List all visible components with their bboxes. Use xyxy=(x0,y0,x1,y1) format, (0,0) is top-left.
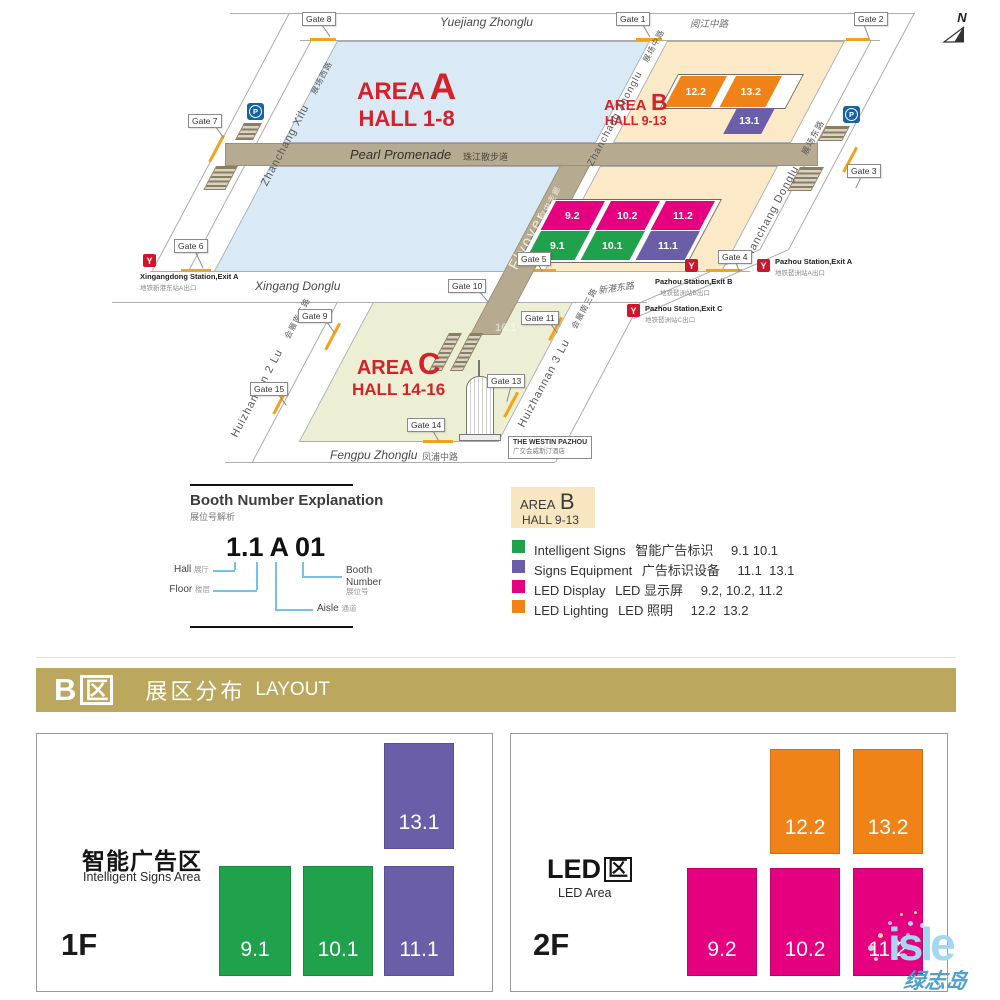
legend-item-en: Signs Equipment xyxy=(534,563,632,578)
hotel-name-zh: 广交会威斯汀酒店 xyxy=(513,448,587,456)
legend-item-en: Intelligent Signs xyxy=(534,543,626,558)
gate-pointer xyxy=(195,252,204,269)
exhibition-map-page: 12.2 13.2 13.1 9.2 10.2 11.2 9.1 10.1 11… xyxy=(0,0,1000,1000)
road-fengpu-en: Fengpu Zhonglu xyxy=(330,448,417,462)
station-pazhou-c-en: Pazhou Station,Exit C xyxy=(645,304,723,313)
panel-1f-floor-label: 1F xyxy=(61,927,97,963)
hall-number: 13.1 xyxy=(739,115,759,127)
gate-label-15: Gate 15 xyxy=(250,382,288,396)
hall-number: 9.1 xyxy=(240,938,269,962)
road-pearl-en: Pearl Promenade xyxy=(350,147,451,162)
legend-item-halls: 9.1 10.1 xyxy=(731,543,778,558)
station-pazhou-b-zh: 地铁琶洲站B出口 xyxy=(660,287,710,297)
panel-hall-10-1: 10.1 xyxy=(303,866,373,976)
panel-hall-13-2: 13.2 xyxy=(853,749,923,854)
legend-item-en: LED Lighting xyxy=(534,603,608,618)
hall-number: 11.1 xyxy=(399,938,438,962)
gate-label-14: Gate 14 xyxy=(407,418,445,432)
gate-label-1: Gate 1 xyxy=(616,12,650,26)
road-xingang-en: Xingang Donglu xyxy=(255,279,340,293)
westin-tower-base xyxy=(459,434,501,441)
legend-item-halls: 12.2 13.2 xyxy=(691,603,749,618)
gate-label-11: Gate 11 xyxy=(521,311,559,325)
gate-label-4: Gate 4 xyxy=(718,250,752,264)
legend-area-word: AREA xyxy=(520,497,555,512)
gate-label-9: Gate 9 xyxy=(298,309,332,323)
watermark-dot xyxy=(868,945,874,951)
section-area-letter: B xyxy=(54,672,76,708)
gate-label-6: Gate 6 xyxy=(174,239,208,253)
metro-icon: Y xyxy=(757,259,770,272)
area-hall: HALL 14-16 xyxy=(352,381,445,399)
panel-2f-subtitle: LED Area xyxy=(558,886,612,900)
watermark-dot xyxy=(900,913,903,916)
area-b-legend: AREA B HALL 9-13 Intelligent Signs 智能广告标… xyxy=(0,480,1000,640)
area-a-title: AREA A HALL 1-8 xyxy=(357,68,456,130)
westin-hotel-label: THE WESTIN PAZHOU 广交会威斯汀酒店 xyxy=(508,436,592,459)
area-letter: C xyxy=(418,346,440,381)
station-pazhou-a-zh: 地铁琶洲站A出口 xyxy=(775,267,825,277)
faint-hall-label: 16.1 xyxy=(495,322,516,334)
watermark-dot xyxy=(874,957,878,961)
gate-label-8: Gate 8 xyxy=(302,12,336,26)
road-yuejiang-zh: 阅江中路 xyxy=(690,16,728,30)
legend-swatch-led-lighting xyxy=(512,600,525,613)
floor-panel-1f: 13.1 9.1 10.1 11.1 智能广告区 Intelligent Sig… xyxy=(36,733,493,992)
hall-number: 9.1 xyxy=(550,240,565,252)
hotel-name-en: THE WESTIN PAZHOU xyxy=(513,439,587,448)
hall-number: 9.2 xyxy=(565,210,580,222)
metro-icon: Y xyxy=(143,254,156,267)
legend-item-halls: 11.1 13.1 xyxy=(738,563,795,578)
callout-line xyxy=(256,562,258,590)
legend-item-zh: 智能广告标识 xyxy=(635,543,713,558)
watermark-dot xyxy=(914,911,917,914)
legend-swatch-intelligent-signs xyxy=(512,540,525,553)
panel-hall-13-1: 13.1 xyxy=(384,743,454,849)
gate-pointer xyxy=(327,322,335,332)
section-title-zh: 展区分布 xyxy=(145,674,245,706)
panel-hall-12-2: 12.2 xyxy=(770,749,840,854)
hall-number: 13.1 xyxy=(399,811,440,835)
panel-hall-10-2: 10.2 xyxy=(770,868,840,976)
callout-line xyxy=(275,562,277,609)
area-word: AREA xyxy=(357,78,425,105)
compass-n-label: N xyxy=(956,10,968,25)
legend-item-halls: 9.2, 10.2, 11.2 xyxy=(701,583,783,598)
legend-item-led-display: LED Display LED 显示屏 9.2, 10.2, 11.2 xyxy=(534,580,783,599)
gate-label-5: Gate 5 xyxy=(517,252,551,266)
gate-pointer xyxy=(864,26,869,39)
pearl-promenade-band xyxy=(225,143,818,166)
gate-tick xyxy=(310,38,336,41)
gate-pointer xyxy=(322,25,330,36)
gate-tick xyxy=(324,323,341,351)
hall-number: 10.1 xyxy=(603,240,623,252)
legend-item-zh: LED 照明 xyxy=(618,603,673,618)
panel-2f-title-prefix: LED xyxy=(547,854,601,884)
parking-icon: P xyxy=(843,106,860,123)
road-line xyxy=(225,462,555,463)
gate-label-10: Gate 10 xyxy=(448,279,486,293)
legend-item-en: LED Display xyxy=(534,583,606,598)
panel-hall-9-1: 9.1 xyxy=(219,866,291,976)
legend-swatch-signs-equipment xyxy=(512,560,525,573)
gate-pointer xyxy=(855,178,861,188)
section-divider-line xyxy=(36,657,956,658)
panel-1f-subtitle: Intelligent Signs Area xyxy=(83,870,200,884)
area-hall: HALL 1-8 xyxy=(357,107,456,130)
callout-line xyxy=(213,570,235,572)
gate-label-7: Gate 7 xyxy=(188,114,222,128)
road-name-zh: 会展南三路 xyxy=(570,286,599,330)
gate-tick xyxy=(846,38,870,41)
panel-hall-9-2: 9.2 xyxy=(687,868,757,976)
metro-icon: Y xyxy=(627,304,640,317)
legend-item-zh: 广告标识设备 xyxy=(642,563,720,578)
panel-2f-floor-label: 2F xyxy=(533,927,569,963)
hall-number: 12.2 xyxy=(686,86,706,98)
callout-line xyxy=(302,576,342,578)
road-pearl-zh: 珠江散步道 xyxy=(463,150,508,163)
legend-item-led-lighting: LED Lighting LED 照明 12.2 13.2 xyxy=(534,600,748,619)
legend-area-letter: B xyxy=(560,489,575,514)
station-pazhou-b-en: Pazhou Station,Exit B xyxy=(655,277,733,286)
venue-map: 12.2 13.2 13.1 9.2 10.2 11.2 9.1 10.1 11… xyxy=(0,0,1000,480)
legend-area-box: AREA B HALL 9-13 xyxy=(511,487,595,528)
road-yuejiang-en: Yuejiang Zhonglu xyxy=(440,15,533,29)
parking-letter: P xyxy=(845,108,858,121)
area-letter: A xyxy=(429,66,456,107)
area-word: AREA xyxy=(357,357,414,379)
section-header-bar: B 区 展区分布 LAYOUT xyxy=(36,668,956,712)
hall-number: 10.2 xyxy=(618,210,638,222)
panel-2f-title-char: 区 xyxy=(604,857,632,882)
legend-item-intelligent-signs: Intelligent Signs 智能广告标识 9.1 10.1 xyxy=(534,540,778,559)
station-pazhou-a-en: Pazhou Station,Exit A xyxy=(775,257,852,266)
panel-2f-title: LED区 xyxy=(547,854,632,885)
hall-number: 12.2 xyxy=(785,816,826,840)
gate-tick xyxy=(208,135,225,163)
gate-label-13: Gate 13 xyxy=(487,374,525,388)
legend-item-zh: LED 显示屏 xyxy=(615,583,683,598)
area-letter: B xyxy=(651,89,668,115)
hall-number: 11.2 xyxy=(673,210,693,222)
callout-line xyxy=(302,562,304,576)
road-fengpu-zh: 凤浦中路 xyxy=(422,450,458,463)
parking-icon: P xyxy=(247,103,264,120)
station-xingangdong-zh: 地铁新港东站A出口 xyxy=(140,282,196,292)
watermark-text-zh: 绿志岛 xyxy=(902,965,969,995)
section-area-char: 区 xyxy=(80,675,113,705)
legend-area-hall: HALL 9-13 xyxy=(522,513,595,527)
compass: N xyxy=(942,10,968,50)
compass-arrow-icon xyxy=(942,25,968,45)
hall-number: 13.2 xyxy=(741,86,761,98)
legend-item-signs-equipment: Signs Equipment 广告标识设备 11.1 13.1 xyxy=(534,560,794,579)
station-pazhou-c-zh: 地铁琶洲站C出口 xyxy=(645,314,695,324)
section-title-en: LAYOUT xyxy=(255,679,330,701)
watermark-logo: isle 绿志岛 xyxy=(862,905,997,1000)
hall-number: 11.1 xyxy=(658,240,678,252)
callout-line xyxy=(213,590,257,592)
area-c-title: AREA C HALL 14-16 xyxy=(352,348,445,398)
legend-swatch-led-display xyxy=(512,580,525,593)
watermark-text: isle xyxy=(888,917,953,971)
hall-number: 10.2 xyxy=(785,938,826,962)
hall-number: 9.2 xyxy=(707,938,736,962)
callout-line xyxy=(275,609,313,611)
watermark-dot xyxy=(878,933,883,938)
callout-line xyxy=(234,562,236,570)
gate-label-2: Gate 2 xyxy=(854,12,888,26)
panel-hall-11-1: 11.1 xyxy=(384,866,454,976)
metro-icon: Y xyxy=(685,259,698,272)
hall-number: 13.2 xyxy=(868,816,909,840)
parking-letter: P xyxy=(249,105,262,118)
hall-number: 10.1 xyxy=(318,938,359,962)
gate-label-3: Gate 3 xyxy=(847,164,881,178)
station-xingangdong-en: Xingangdong Station,Exit A xyxy=(140,272,238,281)
